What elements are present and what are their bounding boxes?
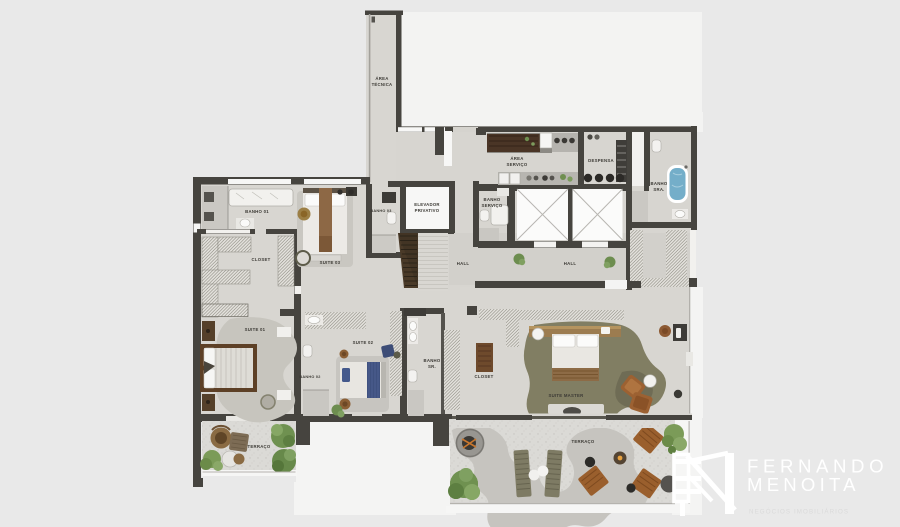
svg-text:SERVIÇO: SERVIÇO <box>481 203 502 208</box>
svg-text:BANHO: BANHO <box>483 197 500 202</box>
svg-text:SUITE MASTER: SUITE MASTER <box>549 393 585 398</box>
svg-text:SERVIÇO: SERVIÇO <box>506 162 527 167</box>
svg-text:SUITE 02: SUITE 02 <box>353 340 374 345</box>
svg-text:TERRAÇO: TERRAÇO <box>248 444 271 449</box>
svg-text:SUITE 01: SUITE 01 <box>245 327 266 332</box>
svg-text:ÁREA: ÁREA <box>510 156 523 161</box>
svg-text:ELEVADOR: ELEVADOR <box>414 202 440 207</box>
svg-text:TÉCNICA: TÉCNICA <box>372 82 393 87</box>
svg-text:BANHO 01: BANHO 01 <box>245 209 269 214</box>
svg-text:HALL: HALL <box>457 261 470 266</box>
svg-text:CLOSET: CLOSET <box>252 257 271 262</box>
svg-text:CLOSET: CLOSET <box>475 374 494 379</box>
svg-text:HALL: HALL <box>564 261 577 266</box>
svg-text:ÁREA: ÁREA <box>375 76 388 81</box>
svg-text:SR.: SR. <box>428 364 436 369</box>
svg-text:DESPENSA: DESPENSA <box>588 158 614 163</box>
svg-text:BANHO: BANHO <box>423 358 440 363</box>
svg-text:BANHO: BANHO <box>650 181 667 186</box>
svg-text:PRIVATIVO: PRIVATIVO <box>415 208 440 213</box>
svg-text:MENOITA: MENOITA <box>747 474 860 495</box>
svg-text:TERRAÇO: TERRAÇO <box>572 439 595 444</box>
svg-text:BANHO 02: BANHO 02 <box>299 375 320 379</box>
svg-text:SRA.: SRA. <box>653 187 664 192</box>
svg-text:BANHO 03: BANHO 03 <box>370 209 391 213</box>
svg-text:SUITE 03: SUITE 03 <box>320 260 341 265</box>
svg-text:NEGÓCIOS IMOBILIÁRIOS: NEGÓCIOS IMOBILIÁRIOS <box>749 509 849 516</box>
